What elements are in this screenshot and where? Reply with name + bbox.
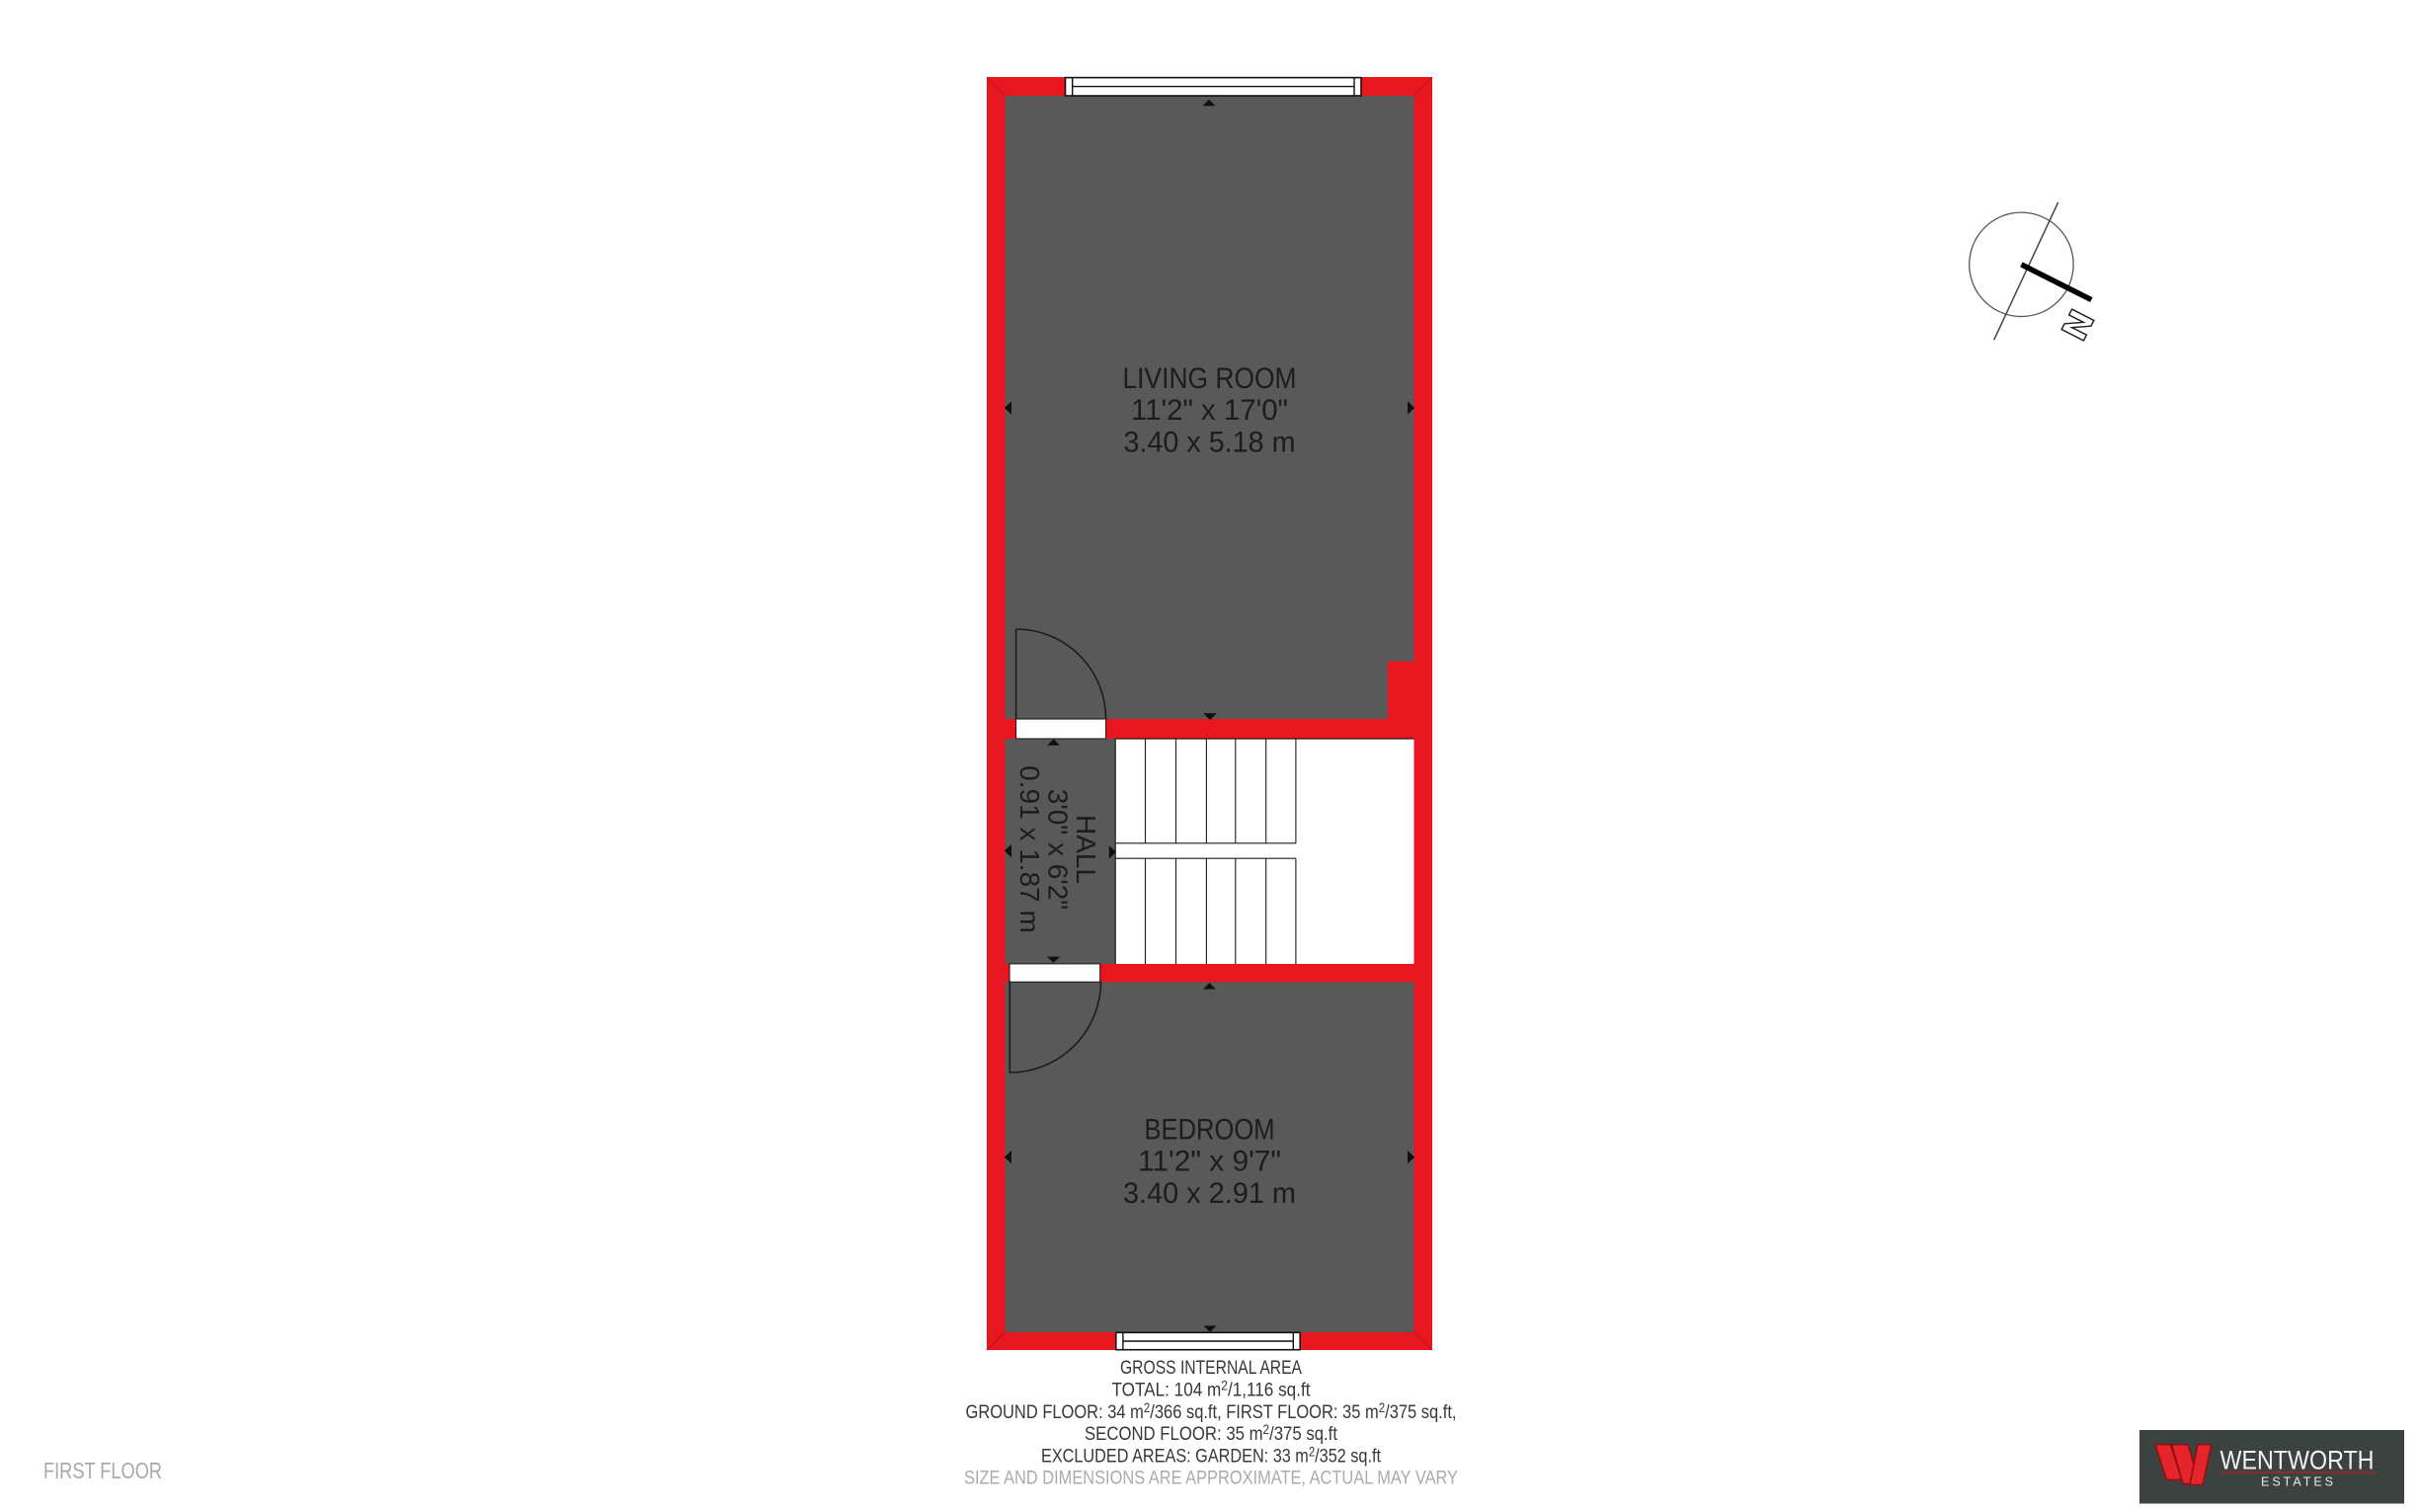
svg-text:3.40 x 5.18 m: 3.40 x 5.18 m xyxy=(1124,426,1296,458)
svg-text:SIZE AND DIMENSIONS ARE APPROX: SIZE AND DIMENSIONS ARE APPROXIMATE, ACT… xyxy=(964,1469,1458,1489)
svg-text:LIVING ROOM: LIVING ROOM xyxy=(1123,362,1297,395)
svg-text:3'0" x 6'2": 3'0" x 6'2" xyxy=(1043,789,1074,910)
svg-text:0.91 x 1.87 m: 0.91 x 1.87 m xyxy=(1014,765,1045,933)
svg-text:11'2" x 17'0": 11'2" x 17'0" xyxy=(1131,394,1288,427)
svg-text:GROUND FLOOR: 34 m2/366 sq.ft,: GROUND FLOOR: 34 m2/366 sq.ft, FIRST FLO… xyxy=(966,1400,1457,1423)
svg-text:WENTWORTH: WENTWORTH xyxy=(2220,1446,2375,1475)
svg-text:3.40 x 2.91 m: 3.40 x 2.91 m xyxy=(1123,1177,1296,1210)
svg-text:SECOND FLOOR: 35 m2/375 sq.ft: SECOND FLOOR: 35 m2/375 sq.ft xyxy=(1085,1422,1338,1445)
svg-text:HALL: HALL xyxy=(1071,815,1101,884)
svg-text:BEDROOM: BEDROOM xyxy=(1145,1113,1275,1146)
svg-text:EXCLUDED AREAS: GARDEN: 33 m2/: EXCLUDED AREAS: GARDEN: 33 m2/352 sq.ft xyxy=(1041,1444,1382,1467)
svg-text:GROSS INTERNAL AREA: GROSS INTERNAL AREA xyxy=(1120,1358,1302,1379)
svg-text:TOTAL: 104 m2/1,116 sq.ft: TOTAL: 104 m2/1,116 sq.ft xyxy=(1112,1379,1312,1401)
svg-text:FIRST FLOOR: FIRST FLOOR xyxy=(43,1458,162,1483)
svg-text:11'2" x 9'7": 11'2" x 9'7" xyxy=(1138,1146,1281,1178)
